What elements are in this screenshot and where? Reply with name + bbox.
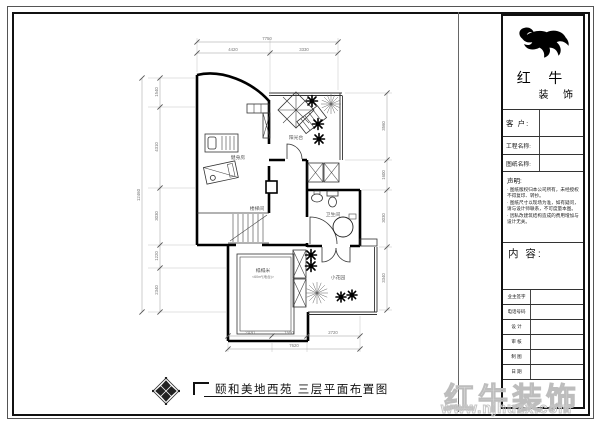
toilet-symbol (327, 191, 338, 207)
brand-subname: 装 饰 (539, 86, 580, 101)
ac-ledge (360, 239, 377, 246)
sign-row-phone-label: 电话号码 (503, 305, 531, 319)
sign-row-design: 设 计 (503, 320, 583, 335)
statement-item: 图纸尺寸以现场为准，如有疑问，请与设计师联系，不可度量本图。 (507, 200, 580, 212)
terrace-door-arc (287, 144, 302, 159)
sign-row-review: 审 核 (503, 335, 583, 350)
watermark-url: www.njhuzx.com (441, 401, 572, 417)
company-seal-icon (152, 377, 180, 405)
room-label-tatami-note: <60m²(地台)> (252, 274, 274, 279)
svg-text:7750: 7750 (262, 36, 272, 41)
room-label-gym: 健身房 (231, 154, 246, 161)
sign-row-draft: 制 图 (503, 350, 583, 365)
svg-text:1540: 1540 (154, 87, 159, 97)
dimension-top: 7750 4420 3330 (194, 36, 340, 97)
sign-row-owner-label: 业主签字 (503, 290, 531, 304)
svg-text:2430: 2430 (245, 330, 255, 335)
field-drawing-label: 图纸名称: (503, 155, 540, 171)
dimension-right: 3560 1600 3030 3340 (345, 90, 392, 312)
washer-symbols (308, 163, 339, 182)
field-project-name: 工程名称: (503, 137, 583, 155)
plant-symbols (306, 94, 358, 304)
field-customer: 客 户: (503, 110, 583, 137)
svg-text:3560: 3560 (381, 121, 386, 131)
floor-plan: 健身房 阳光台 楼梯间 卫生间 榻榻米 <60m²(地台)> 小花园 7750 … (130, 25, 480, 375)
bathroom-door-arc (310, 217, 337, 244)
room-label-garden: 小花园 (331, 274, 346, 281)
content-label: 内 容: (508, 248, 543, 260)
svg-text:1220: 1220 (154, 251, 159, 261)
garden-door-left-arc (322, 247, 336, 262)
stairs-symbol (230, 214, 267, 242)
svg-text:3340: 3340 (381, 273, 386, 283)
statement-title: 声明: (507, 175, 580, 185)
sign-row-phone: 电话号码 (503, 305, 583, 320)
bracket-icon (193, 382, 209, 395)
svg-text:7620: 7620 (289, 343, 299, 348)
room-label-stairs: 楼梯间 (250, 205, 265, 212)
field-project-label: 工程名称: (503, 137, 540, 154)
statement-section: 声明: 图纸版权归本公司所有，未经授权不得复印、转抄。 图纸尺寸以现场为准，如有… (503, 172, 583, 243)
svg-text:12460: 12460 (136, 188, 141, 201)
brand-name: 红 牛 (503, 68, 583, 88)
room-label-terrace: 阳光台 (289, 134, 304, 141)
exercise-bench-symbol (203, 161, 238, 184)
bull-logo-icon (515, 22, 573, 66)
svg-text:3030: 3030 (154, 211, 159, 221)
svg-text:4310: 4310 (154, 142, 159, 152)
sign-row-owner: 业主签字 (503, 290, 583, 305)
drawing-sheet: 健身房 阳光台 楼梯间 卫生间 榻榻米 <60m²(地台)> 小花园 7750 … (0, 0, 600, 424)
svg-text:3030: 3030 (381, 213, 386, 223)
treadmill-symbol (205, 134, 238, 152)
title-block: 红 牛 装 饰 客 户: 工程名称: 图纸名称: 声明: 图纸版权归本公司所有，… (501, 14, 585, 409)
cabinet-symbol (247, 104, 270, 138)
svg-text:1590: 1590 (284, 330, 294, 335)
flue-column (266, 181, 277, 193)
title-underline (204, 396, 362, 397)
platform-symbol (237, 254, 294, 334)
sign-row-design-label: 设 计 (503, 320, 531, 334)
sign-row-draft-label: 制 图 (503, 350, 531, 364)
sink-symbol (312, 191, 323, 202)
content-section: 内 容: (503, 243, 583, 290)
svg-text:2340: 2340 (154, 285, 159, 295)
room-label-tatami: 榻榻米 (256, 267, 271, 274)
statement-item: 因私改建筑结构造成的费用增加与设计无关。 (507, 213, 580, 225)
field-drawing-name: 图纸名称: (503, 155, 583, 172)
room-label-bathroom: 卫生间 (326, 211, 341, 218)
svg-text:4420: 4420 (228, 47, 238, 52)
drawing-title: 颐和美地西苑 三层平面布置图 (215, 381, 389, 397)
garden-door-right-arc (336, 247, 350, 262)
company-logo: 红 牛 装 饰 (503, 16, 583, 110)
sign-row-review-label: 审 核 (503, 335, 531, 349)
statement-item: 图纸版权归本公司所有，未经授权不得复印、转抄。 (507, 187, 580, 199)
svg-text:3330: 3330 (299, 47, 309, 52)
dimension-left: 12460 1540 4310 3030 1220 2340 (136, 75, 226, 314)
walls (197, 74, 360, 341)
svg-text:1600: 1600 (381, 170, 386, 180)
wardrobe-symbol (293, 250, 306, 307)
field-customer-label: 客 户: (503, 110, 540, 136)
svg-text:2720: 2720 (328, 330, 338, 335)
